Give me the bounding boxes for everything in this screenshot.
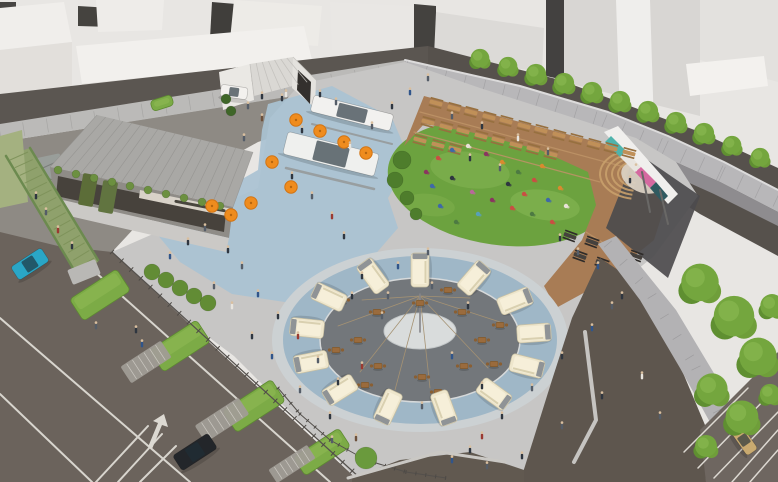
south-bush: [355, 447, 377, 469]
masterplan-aerial-rendering: [0, 0, 778, 482]
rendering-frame: [0, 0, 778, 482]
